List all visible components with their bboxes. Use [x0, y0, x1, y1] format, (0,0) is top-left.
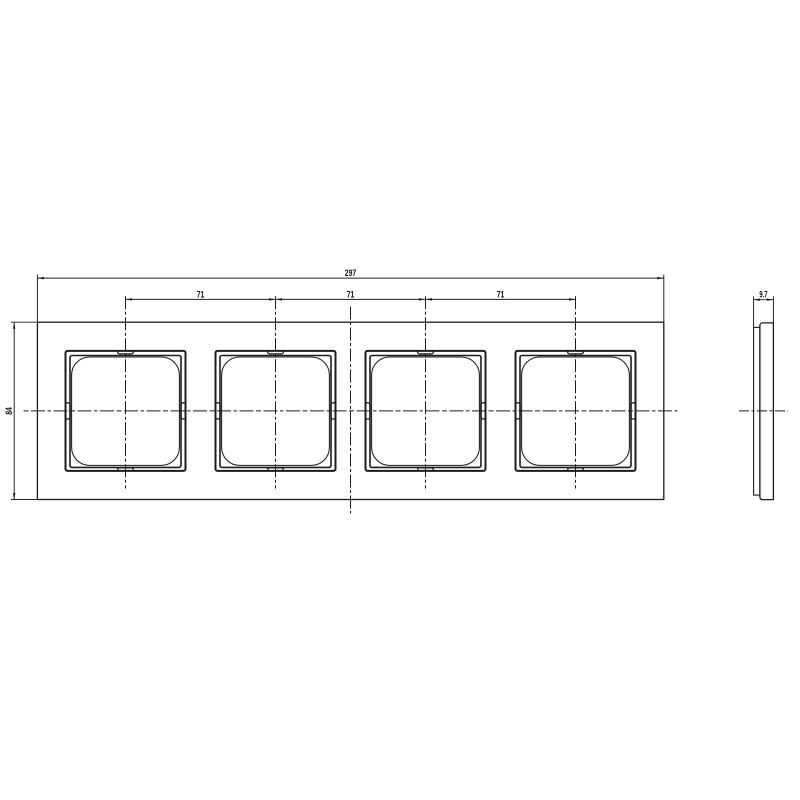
svg-text:84: 84: [4, 407, 14, 415]
svg-text:71: 71: [497, 290, 505, 300]
svg-text:297: 297: [345, 268, 356, 278]
svg-text:9.7: 9.7: [759, 290, 767, 300]
svg-text:71: 71: [347, 290, 355, 300]
svg-text:71: 71: [197, 290, 205, 300]
